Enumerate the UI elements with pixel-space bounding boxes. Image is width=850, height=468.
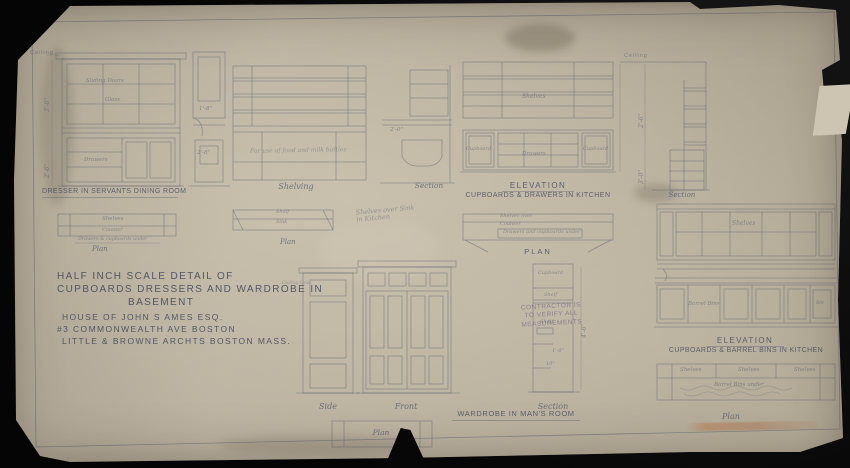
dresser-elevation-drawing (46, 53, 186, 186)
dimension-label: 2'-8" (197, 150, 210, 156)
ceiling-label-left: Ceiling (30, 50, 54, 56)
right-section-drawing (620, 62, 710, 190)
title-line-4: HOUSE OF JOHN S AMES ESQ. (62, 312, 224, 322)
shelf-label: Shelf (540, 320, 553, 326)
shelves-label: Shelves (522, 94, 545, 101)
sink-section-caption: Section (402, 182, 456, 191)
glass-label: Glass (105, 97, 120, 103)
plan-label: Shelf (276, 210, 289, 216)
kitchen-elevation-subcaption: CUPBOARDS & DRAWERS IN KITCHEN (460, 192, 616, 200)
title-line-6: LITTLE & BROWNE ARCHTS BOSTON MASS. (62, 336, 291, 346)
dresser-plan-caption: Plan (92, 245, 108, 253)
plan-label: Counter (500, 222, 521, 228)
plan-label: Shelves (102, 216, 124, 222)
plan-label: Drawers and cupboards under (503, 230, 580, 236)
title-line-1: HALF INCH SCALE DETAIL OF (57, 271, 234, 282)
dimension-label: 2'-6" (639, 114, 646, 128)
shelves-label: Shelves (732, 221, 755, 228)
wardrobe-side-caption: Side (308, 402, 348, 411)
dresser-caption: DRESSER IN SERVANTS DINING ROOM (42, 188, 178, 198)
drawing-linework (0, 0, 850, 468)
sliding-doors-label: Sliding Doors (86, 78, 124, 84)
dimension-label: 1'-6" (552, 349, 564, 355)
drawing-sheet: Ceiling 3'-6" 2'-6" Sliding Doors Glass … (0, 0, 850, 468)
cupboard-label: Cupboard (538, 271, 563, 277)
shelving-caption: Shelving (256, 182, 336, 191)
right-section-caption: Section (658, 191, 706, 199)
drawers-label: Drawers (84, 157, 108, 163)
plan-label: Shelves (794, 367, 816, 373)
shelf-label: Shelf (544, 293, 557, 299)
title-line-5: #3 COMMONWEALTH AVE BOSTON (57, 324, 236, 334)
plan-label: Shelves (680, 367, 702, 373)
wardrobe-front-drawing (356, 261, 460, 393)
barrel-elevation-caption: ELEVATION (706, 336, 784, 347)
dresser-section-drawing (188, 52, 230, 186)
kitchen-plan-caption: PLAN (508, 248, 568, 257)
wardrobe-front-caption: Front (384, 402, 428, 411)
cupboard-label: Cupboard (583, 147, 608, 153)
ceiling-label-right: Ceiling (624, 53, 648, 59)
wardrobe-main-caption: WARDROBE IN MAN'S ROOM (452, 410, 580, 421)
photo-of-drawing-sheet: Ceiling 3'-6" 2'-6" Sliding Doors Glass … (0, 0, 850, 468)
plan-label: Shelves over (500, 214, 532, 220)
barrel-plan-caption: Plan (722, 412, 740, 421)
sink-section-drawing (380, 65, 455, 183)
plan-label: Barrel Bins under (714, 382, 764, 388)
dimension-label: 3'-0" (639, 170, 646, 184)
ceiling-line-label: Ceiling Line (282, 281, 310, 286)
cupboard-label: Cupboard (466, 147, 491, 153)
plan-label: Sink (276, 220, 287, 226)
plan-label: Counter (102, 228, 123, 234)
dimension-label: 1'-8" (199, 106, 212, 112)
dimension-label: 4'-6" (582, 324, 589, 338)
kitchen-elevation-caption: ELEVATION (502, 181, 574, 192)
dimension-label: 2'-0" (390, 127, 403, 133)
shelving-plan-caption: Plan (280, 238, 296, 246)
shelving-elevation-drawing (233, 66, 366, 180)
barrel-elevation-subcaption: CUPBOARDS & BARREL BINS IN KITCHEN (652, 347, 840, 355)
plan-label: Drawers & cupboards under (78, 237, 147, 243)
drawers-label: Drawers (522, 151, 546, 157)
dimension-label: 10" (546, 362, 555, 368)
bin-label: Bin (816, 301, 824, 306)
barrel-bins-label: Barrel Bins (688, 301, 720, 307)
plan-label: Shelves (738, 367, 760, 373)
dimension-label: 3'-6" (45, 98, 52, 112)
dimension-label: 2'-6" (45, 164, 52, 178)
title-line-3: BASEMENT (128, 297, 194, 308)
